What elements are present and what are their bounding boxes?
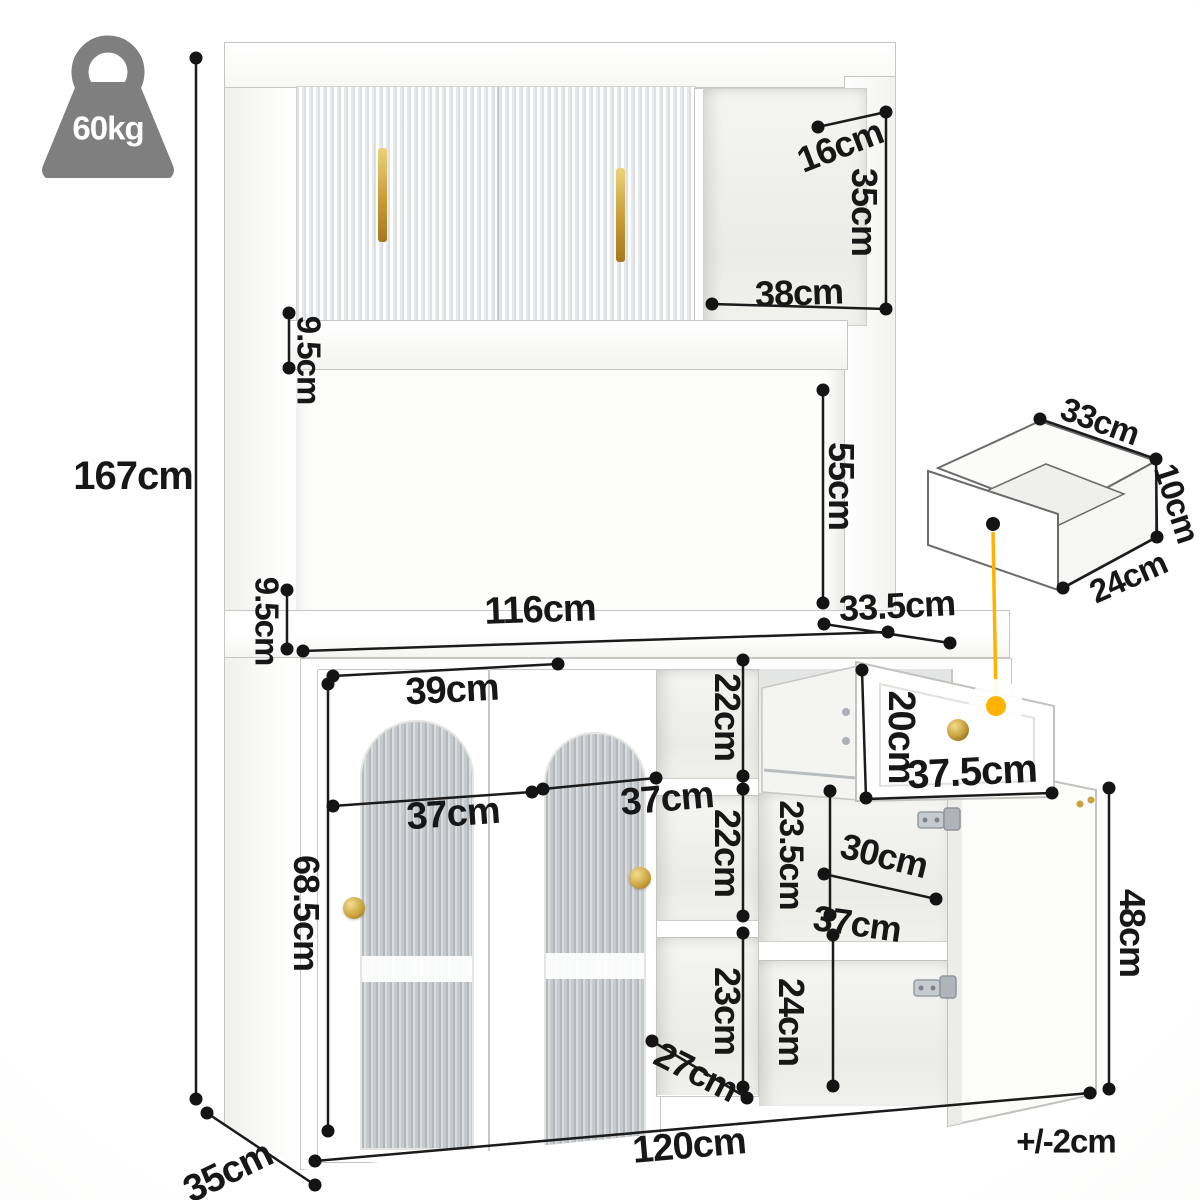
dim-overall-height: 167cm [73, 456, 193, 496]
door-hinge-bottom [914, 976, 956, 998]
dim-middle-cubby-bottom: 23cm [709, 967, 745, 1055]
dim-top-cubby-height: 35cm [846, 168, 882, 256]
dim-open-space-height: 55cm [823, 442, 859, 530]
dim-middle-cubby-top: 22cm [709, 673, 745, 761]
dim-middle-cubby-mid: 22cm [709, 809, 745, 897]
dim-right-lower-cubby: 24cm [773, 978, 809, 1066]
dim-tolerance: +/-2cm [1016, 1125, 1115, 1158]
dim-drawer-front-width: 37.5cm [906, 749, 1038, 796]
weight-capacity-label: 60kg [72, 112, 143, 145]
detail-knob-dot [986, 517, 1000, 531]
dim-shelf-rail-thickness: 9.5cm [293, 316, 326, 405]
drawer-knob [947, 719, 969, 741]
dim-left-door-height: 68.5cm [288, 855, 324, 971]
linework-overlay [0, 0, 1200, 1200]
open-right-door[interactable] [948, 760, 1096, 1126]
dim-overall-width: 120cm [631, 1122, 747, 1170]
dim-countertop-depth: 33.5cm [838, 585, 956, 627]
weight-capacity-icon [40, 28, 200, 178]
dim-center-door-width: 37cm [619, 776, 715, 822]
door-hinge-top [918, 808, 960, 830]
dim-right-door-height: 48cm [1114, 889, 1150, 977]
dim-right-upper-cubby: 23.5cm [774, 800, 808, 909]
dimension-diagram: 60kg 167cm 16cm 35cm 38cm 9.5cm 55cm 9.5… [0, 0, 1200, 1200]
dim-left-door-width: 37cm [405, 792, 501, 836]
dim-countertop-width: 116cm [484, 589, 596, 631]
callout-dot [986, 696, 1006, 716]
dim-countertop-thickness: 9.5cm [251, 577, 284, 666]
dim-top-cubby-width: 38cm [754, 273, 843, 312]
dim-left-door-top-width: 39cm [404, 669, 499, 712]
